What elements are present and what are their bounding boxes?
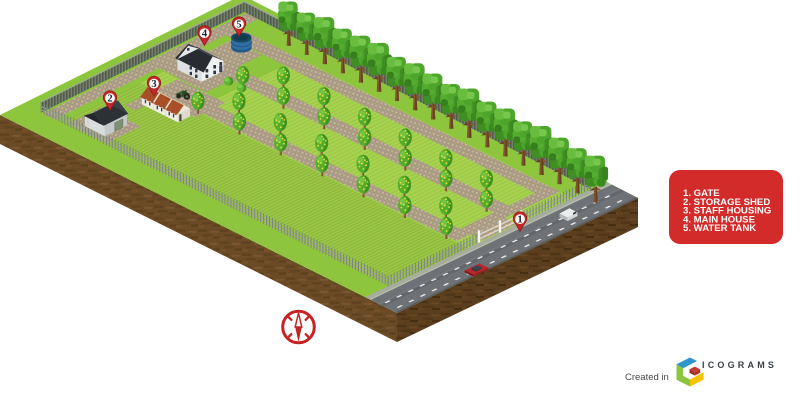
svg-text:4: 4	[202, 29, 208, 40]
svg-text:1: 1	[517, 215, 522, 226]
svg-text:5: 5	[236, 20, 241, 31]
svg-text:3: 3	[151, 79, 156, 90]
svg-text:ICOGRAMS: ICOGRAMS	[702, 360, 777, 370]
svg-text:2: 2	[107, 94, 112, 105]
svg-text:Created in: Created in	[625, 372, 669, 383]
svg-text:5. WATER TANK: 5. WATER TANK	[683, 223, 756, 234]
